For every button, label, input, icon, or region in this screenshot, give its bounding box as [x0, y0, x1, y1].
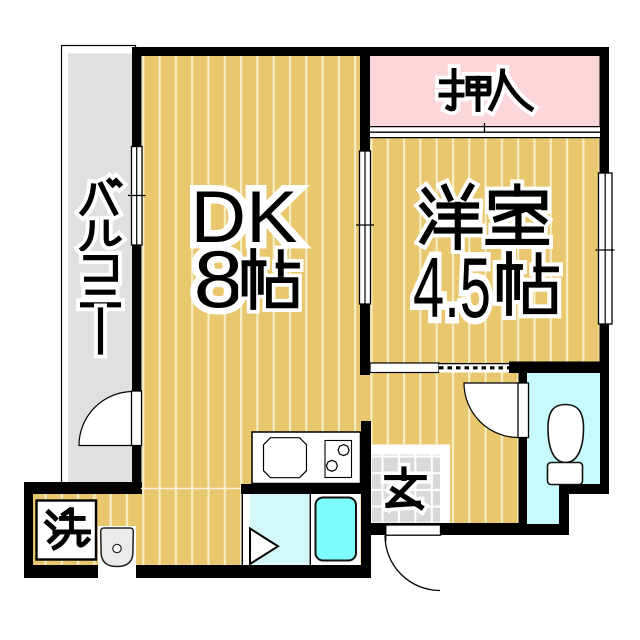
svg-text:4.5: 4.5 — [413, 241, 491, 336]
svg-text:8: 8 — [194, 235, 244, 325]
